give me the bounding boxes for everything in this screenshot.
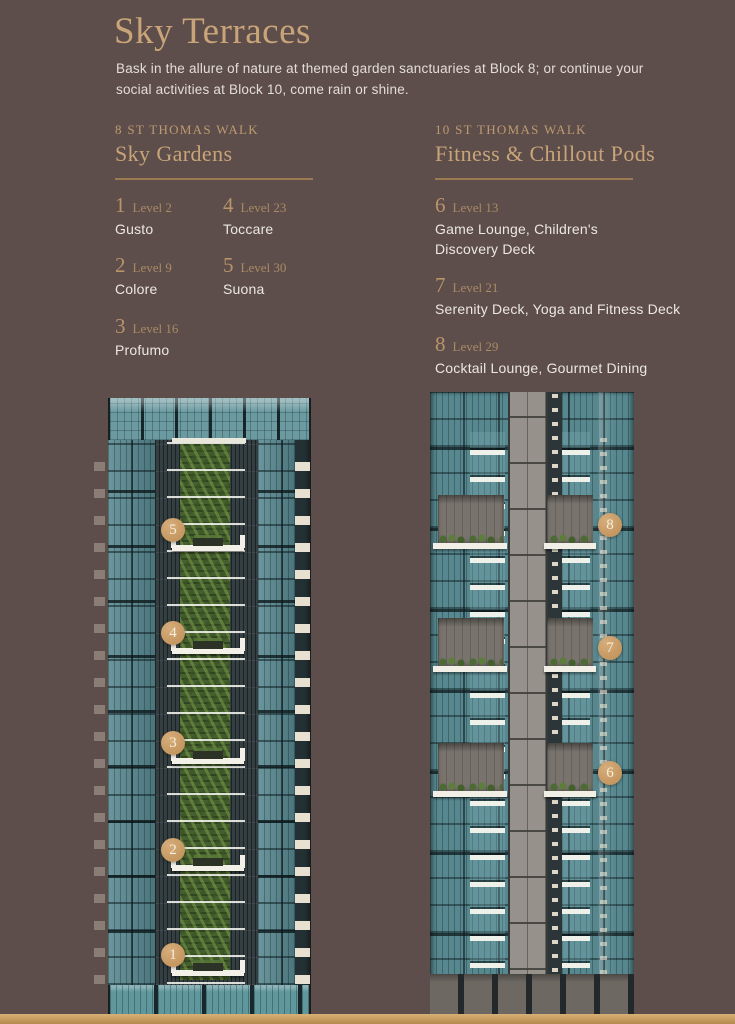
marker-number: 3 [169, 735, 177, 752]
sky-terrace-planter [193, 641, 223, 649]
footer-gold-bar [0, 1014, 735, 1024]
terrace-slab [544, 543, 596, 549]
terrace-slab [544, 666, 596, 672]
marker-number: 4 [169, 625, 177, 642]
level-marker-7: 7 [598, 636, 622, 660]
terrace-slab [544, 791, 596, 797]
terrace-plants [438, 781, 502, 791]
level-marker-5: 5 [161, 518, 185, 542]
marker-number: 1 [169, 947, 177, 964]
sky-terrace-planter [193, 858, 223, 866]
level-marker-6: 6 [598, 761, 622, 785]
terrace-slab [433, 543, 507, 549]
level-marker-1: 1 [161, 943, 185, 967]
sky-terrace-planter [193, 538, 223, 546]
terrace-slab [433, 666, 507, 672]
terrace-plants [549, 656, 591, 666]
marker-number: 8 [606, 517, 614, 534]
level-marker-3: 3 [161, 731, 185, 755]
towers-illustration: 54321876 [0, 0, 735, 1024]
level-marker-8: 8 [598, 513, 622, 537]
terrace-plants [549, 533, 591, 543]
terrace-slab [433, 791, 507, 797]
marker-number: 5 [169, 522, 177, 539]
level-marker-4: 4 [161, 621, 185, 645]
terrace-plants [438, 656, 502, 666]
terrace-plants [549, 781, 591, 791]
marker-number: 6 [606, 765, 614, 782]
marker-overlay: 54321876 [0, 0, 735, 1024]
marker-number: 7 [606, 640, 614, 657]
level-marker-2: 2 [161, 838, 185, 862]
sky-terraces-page: Sky Terraces Bask in the allure of natur… [0, 0, 735, 1024]
terrace-plants [438, 533, 502, 543]
sky-terrace-planter [193, 751, 223, 759]
sky-terrace-planter [193, 963, 223, 971]
marker-number: 2 [169, 842, 177, 859]
